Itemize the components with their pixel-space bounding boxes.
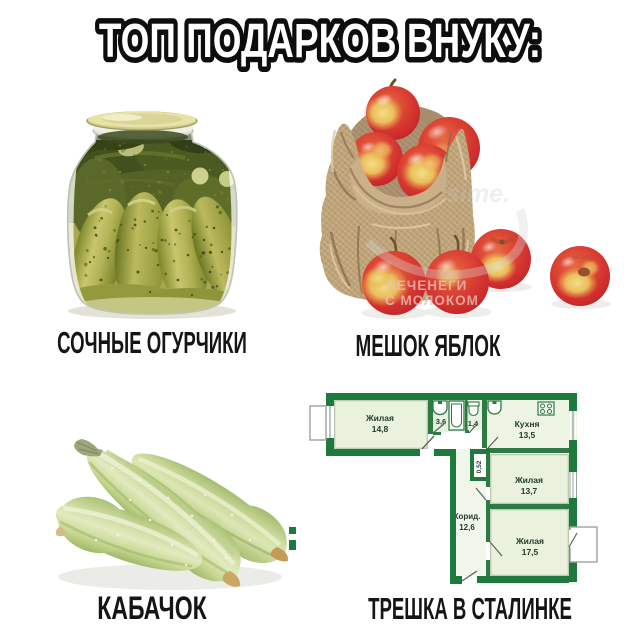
svg-text:СОЧНЫЕ ОГУРЧИКИ: СОЧНЫЕ ОГУРЧИКИ	[57, 326, 247, 360]
svg-text:МЕШОК ЯБЛОК: МЕШОК ЯБЛОК	[356, 329, 501, 363]
svg-text:ТРЕШКА В СТАЛИНКЕ: ТРЕШКА В СТАЛИНКЕ	[368, 592, 572, 626]
svg-text:13,7: 13,7	[521, 486, 538, 496]
svg-text:17,5: 17,5	[522, 547, 539, 557]
svg-text:ПЕЧЕНЕГИ: ПЕЧЕНЕГИ	[386, 278, 467, 293]
svg-text:3,6: 3,6	[436, 417, 446, 426]
svg-text:КАБАЧОК: КАБАЧОК	[97, 590, 207, 626]
svg-text:13,5: 13,5	[519, 430, 536, 440]
svg-text:Кухня: Кухня	[515, 419, 540, 429]
svg-text:Жилая: Жилая	[365, 413, 394, 423]
svg-text:12,6: 12,6	[459, 523, 475, 532]
svg-text:Жилая: Жилая	[514, 475, 543, 485]
svg-text:ТОП ПОДАРКОВ ВНУКУ:: ТОП ПОДАРКОВ ВНУКУ:	[99, 14, 541, 68]
svg-text:sime.: sime.	[446, 180, 510, 208]
svg-text:0,52: 0,52	[476, 460, 483, 473]
svg-text:С МОЛОКОМ: С МОЛОКОМ	[385, 293, 479, 308]
svg-text:Жилая: Жилая	[515, 536, 544, 546]
svg-text:Корид.: Корид.	[454, 512, 481, 521]
svg-text:14,8: 14,8	[372, 424, 389, 434]
